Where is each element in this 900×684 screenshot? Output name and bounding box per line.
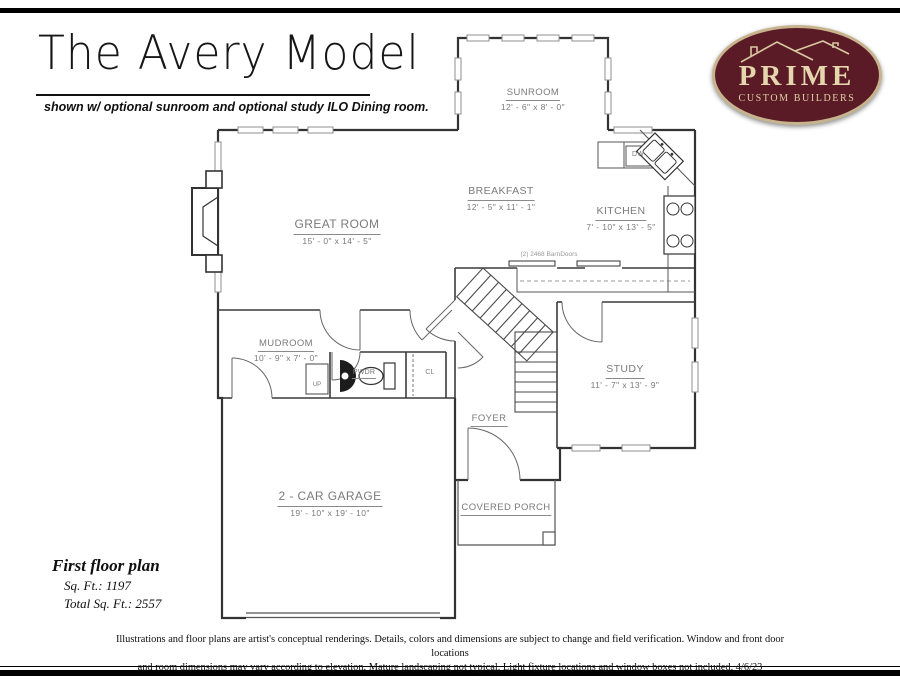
plan-total-sqft: Total Sq. Ft.: 2557 [64,596,161,612]
barn-door-slab [577,261,620,266]
disclaimer-line-2: and room dimensions may vary according t… [138,662,763,673]
label-closet: CL [425,368,434,377]
barn-door-slab [509,261,555,266]
plan-summary-title: First floor plan [52,556,161,576]
closet-door [410,310,452,340]
label-foyer: FOYER [471,413,508,427]
label-barn-doors: (2) 2468 BarnDoors [520,251,577,259]
label-breakfast: BREAKFAST 12' - 5" x 11' - 1" [467,185,536,213]
label-up: UP [313,382,321,390]
flyer-page: The Avery Model shown w/ optional sunroo… [0,0,900,684]
label-powder: PWDR [352,368,376,379]
label-great-room: GREAT ROOM 15' - 0" x 14' - 5" [294,217,381,247]
disclaimer-line-1: Illustrations and floor plans are artist… [116,634,784,659]
label-kitchen: KITCHEN 7' - 10" x 13' - 5" [586,205,655,233]
front-door [468,428,520,480]
foyer-closet-door [458,332,483,368]
fireplace [192,171,222,272]
door-swings [232,300,602,480]
label-sunroom: SUNROOM 12' - 6" x 8' - 0" [501,87,565,113]
study-door [562,302,602,342]
plan-summary: First floor plan Sq. Ft.: 1197 Total Sq.… [52,556,161,612]
label-garage: 2 - CAR GARAGE 19' - 10" x 19' - 10" [278,489,383,519]
disclaimer: Illustrations and floor plans are artist… [110,633,790,675]
toilet-tank [384,363,395,389]
porch-post [543,532,555,545]
label-study: STUDY 11' - 7" x 13' - 9" [591,363,660,391]
hall-cabinetry [509,261,695,292]
hall-door [426,300,455,341]
mudroom-door [320,310,360,350]
exterior-walls [218,38,695,618]
label-mudroom: MUDROOM 10' - 9" x 7' - 0" [254,338,318,364]
plan-sqft: Sq. Ft.: 1197 [64,578,161,594]
range [664,196,695,254]
staircase [457,268,557,412]
garage-door [246,613,440,618]
label-covered-porch: COVERED PORCH [460,502,551,516]
label-dishwasher: DW [632,150,644,159]
